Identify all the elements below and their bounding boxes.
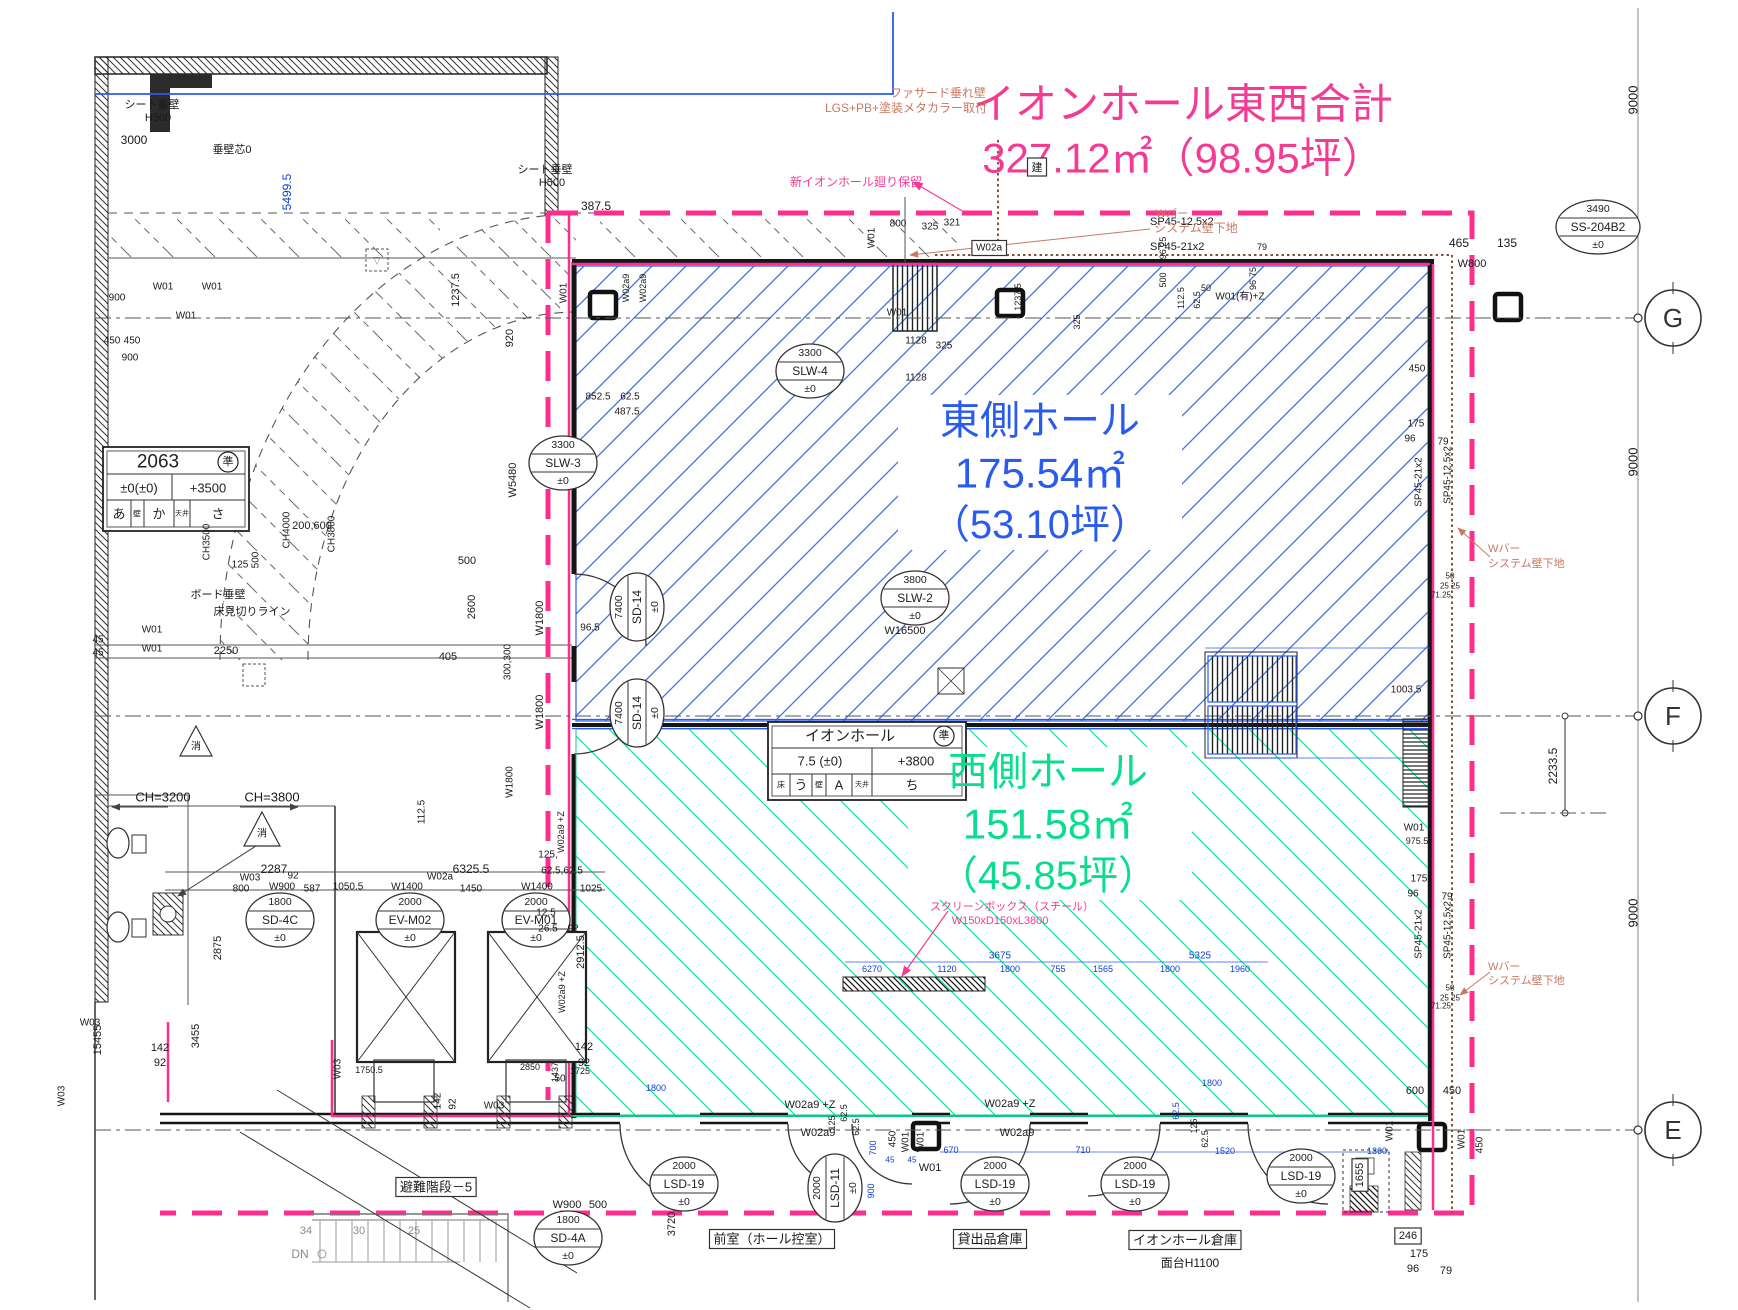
dim-label: 1800	[1000, 964, 1020, 974]
dim-label: 1360	[1367, 1146, 1387, 1156]
tag-row: SD-14	[630, 696, 644, 730]
east-hall-tsubo: （53.10坪）	[930, 503, 1150, 547]
dim-label: 710	[1075, 1145, 1090, 1155]
dim-label: 135	[1497, 236, 1517, 250]
dim-label: 1655	[1354, 1163, 1366, 1187]
dim-label: 92	[567, 924, 579, 935]
tag-row: ±0	[1295, 1188, 1307, 1200]
dim-label: 900	[109, 293, 126, 304]
dim-label: 142	[151, 1042, 169, 1054]
dim-label: 96	[1248, 280, 1258, 290]
dim-label: 45	[908, 1156, 917, 1165]
dim-label: 45	[92, 648, 104, 659]
dim-label: W03	[333, 1058, 344, 1079]
dim-label: 325	[922, 222, 939, 233]
dim-label: 5499.5	[280, 173, 294, 210]
tag-row: 3490	[1586, 203, 1610, 215]
dim-label: Wバー	[1488, 960, 1520, 973]
dim-label: 92	[448, 1098, 459, 1110]
tag-row: 7400	[613, 595, 625, 619]
dim-label: 587	[304, 884, 321, 895]
dim-label: CH4000	[282, 511, 293, 548]
dim-label: 1025	[580, 884, 603, 895]
dim-label: シート垂壁	[518, 162, 573, 176]
dim-label: 920	[504, 329, 516, 347]
dim-label: 96	[1404, 434, 1416, 445]
dim-label: W02a	[976, 243, 1003, 254]
dim-label: 450	[1443, 1085, 1461, 1097]
dim-label: 62.5	[1200, 1130, 1210, 1148]
dim-label: 建	[1032, 160, 1043, 174]
dim-label: 125	[1189, 1118, 1199, 1133]
dim-label: 112.5	[417, 799, 428, 824]
dim-label: W1800	[505, 766, 516, 798]
tag-row: 1800	[268, 896, 292, 908]
dim-label: 1565	[1093, 964, 1113, 974]
tag-cell: さ	[211, 507, 224, 522]
dim-label: W02a9 +Z	[784, 1099, 835, 1111]
dim-label: スクリーンボックス（スチール）	[930, 900, 1094, 913]
dim-label: LGS+PB+塗装メタカラー取付	[825, 100, 987, 115]
dim-label: 321	[944, 218, 961, 229]
dim-label: W02a9 +Z	[556, 811, 566, 853]
dim-label: W03	[240, 873, 261, 884]
dim-label: 6270	[862, 964, 882, 974]
dim-label: SP45-21x2	[1150, 241, 1204, 253]
dim-label: 900	[122, 353, 139, 364]
dim-label: 465	[1449, 236, 1469, 250]
dim-label: DN	[291, 1247, 308, 1261]
tag-row: LSD-19	[664, 1177, 705, 1191]
tag-row: SLW-4	[792, 364, 828, 378]
dim-label: 405	[439, 651, 457, 663]
dim-label: 1237.5	[450, 273, 462, 307]
door-tag-sd-14: 7400SD-14±0	[610, 573, 664, 641]
dim-label: 2850	[520, 1062, 540, 1072]
west-hall-tsubo: （45.85坪）	[938, 854, 1158, 898]
dim-label: 500	[458, 555, 476, 567]
tag-row: LSD-19	[975, 1177, 1016, 1191]
tag-row: ±0	[909, 610, 921, 622]
dim-label: W02a9	[1000, 1127, 1035, 1139]
dim-label: 1520	[1215, 1146, 1235, 1156]
dim-label: W1400	[391, 882, 423, 893]
tag-row: LSD-11	[828, 1168, 842, 1208]
dim-label: 79	[1440, 1265, 1452, 1277]
tag-row: SS-204B2	[1571, 220, 1626, 234]
tag-row: ±0	[989, 1196, 1001, 1208]
dim-label: 2250	[214, 645, 238, 657]
dim-label: W1800	[534, 601, 546, 636]
dim-label: W900	[269, 882, 296, 893]
dim-label: 3675	[989, 951, 1012, 962]
dim-label: 9000	[1626, 86, 1641, 115]
dim-label: 175	[1408, 419, 1425, 430]
dim-label: W01	[142, 644, 163, 655]
dim-label: SP45-21x2	[1414, 457, 1425, 507]
column	[1495, 294, 1521, 320]
dim-label: 15455	[92, 1025, 104, 1056]
dim-label: 9000	[1626, 899, 1641, 928]
dim-label: 1237.5	[1013, 283, 1023, 311]
dim-label: 1800	[1202, 1078, 1222, 1088]
dim-label: 700	[868, 1140, 878, 1155]
dim-label: ▽	[373, 256, 381, 267]
door-tag-ss-204b2: 3490SS-204B2±0	[1556, 200, 1640, 254]
dim-label: 175	[1411, 874, 1428, 885]
dim-label: 5325	[1189, 951, 1212, 962]
tag-cell: 壁	[815, 780, 823, 790]
tag-row: 2000	[811, 1176, 823, 1200]
dim-label: 62.5,62.5	[541, 866, 583, 877]
dim-label: 2912.5	[575, 935, 587, 969]
tag-cell: ち	[905, 778, 918, 793]
dim-label: W03	[57, 1085, 68, 1106]
dim-label: 900	[866, 1183, 876, 1198]
dim-label: 79	[1441, 892, 1453, 903]
dim-label: 1450	[460, 884, 483, 895]
dim-label: 450	[104, 336, 121, 347]
tag-cell: 床	[777, 780, 785, 790]
dim-label: 1050.5	[333, 882, 364, 893]
dim-label: 34	[300, 1225, 312, 1237]
dim-label: 1128	[905, 373, 927, 384]
dim-label: 2233.5	[1546, 747, 1560, 784]
dim-label: 1003.5	[1391, 685, 1422, 696]
dim-label: 面台H1100	[1161, 1255, 1220, 1270]
door-tag-lsd-19: 2000LSD-19±0	[961, 1157, 1029, 1211]
dim-label: 79	[1257, 242, 1267, 252]
dim-label: Wバー	[1156, 207, 1188, 220]
tag-row: ±0	[678, 1196, 690, 1208]
tag-row: ±0	[847, 1182, 859, 1194]
tag-level: ±0(±0)	[120, 481, 157, 496]
dim-label: H500	[539, 177, 565, 189]
tag-row: 2000	[1289, 1152, 1313, 1164]
dim-label: 800	[890, 219, 907, 230]
dim-label: 消	[191, 740, 201, 753]
door-tag-lsd-19: 2000LSD-19±0	[1101, 1157, 1169, 1211]
dim-label: 71.25	[1431, 1002, 1452, 1011]
elevator-shaft-ev-m01	[488, 932, 586, 1062]
dim-label: 消	[257, 827, 267, 840]
dim-label: W01	[1404, 823, 1425, 834]
dim-label: W01	[916, 1131, 927, 1152]
dim-label: 96	[1407, 889, 1419, 900]
plan-title-line1: イオンホール東西合計	[973, 81, 1393, 128]
door-tag-sd-14: 7400SD-14±0	[610, 679, 664, 747]
dim-label: 1750.5	[355, 1065, 383, 1075]
tag-row: ±0	[557, 475, 569, 487]
dim-label: 1128	[905, 336, 927, 347]
dim-label: 62.5	[620, 392, 640, 403]
tag-cell: 天井	[855, 780, 869, 789]
dim-label: W02a9 +Z	[984, 1098, 1035, 1110]
dim-label: 450	[1409, 364, 1426, 375]
tag-level: 7.5 (±0)	[798, 754, 843, 769]
room-label-escape-stair-5: 避難階段－5	[400, 1180, 472, 1195]
tag-row: LSD-19	[1115, 1177, 1156, 1191]
tag-number: 2063	[137, 452, 179, 473]
dim-label: 96.5	[580, 623, 600, 634]
dim-label: W01	[867, 227, 878, 248]
dim-label: W03	[80, 1018, 101, 1029]
tag-cell: か	[152, 507, 165, 522]
dim-label: 床見切りライン	[214, 604, 291, 618]
room-tag-2063: 2063 準 ±0(±0) +3500 あ 壁 か 天井 さ	[103, 447, 249, 531]
east-hall-area: 175.54㎡	[955, 450, 1125, 497]
dim-label: W01	[202, 282, 223, 293]
dim-label: 50	[1201, 283, 1211, 293]
door-tag-lsd-19: 2000LSD-19±0	[1267, 1149, 1335, 1203]
dim-label: 3455	[190, 1024, 202, 1048]
dim-label: CH3800	[327, 515, 338, 552]
room-tag-aeon-hall: イオンホール 準 7.5 (±0) +3800 床 う 壁 A 天井 ち	[768, 722, 966, 800]
dim-label: ボード垂壁	[191, 587, 246, 601]
tag-room-name: イオンホール	[805, 728, 895, 745]
dim-label: W01(有)+Z	[1215, 290, 1264, 303]
hall-areas	[576, 266, 1428, 1115]
dim-label: W03	[484, 1101, 505, 1112]
tag-row: 3300	[798, 347, 822, 359]
dim-label: W01	[142, 625, 163, 636]
dim-label: 500	[1158, 272, 1168, 287]
dim-label: 62.5	[851, 1118, 861, 1136]
dim-label: 25 25	[1440, 582, 1461, 591]
dim-label: 1120	[937, 964, 956, 974]
dim-label: 142	[575, 1041, 593, 1053]
east-hall-name: 東側ホール	[940, 399, 1140, 443]
door-tag-sd-4a: 1800SD-4A±0	[534, 1211, 602, 1265]
tag-row: 2000	[398, 896, 422, 908]
dim-label: W02a9	[638, 274, 648, 303]
dim-label: 79	[1437, 437, 1449, 448]
tag-cell: A	[835, 778, 844, 793]
door-tag-ev-m01: 2000EV-M01±0	[502, 893, 570, 947]
dim-label: 45	[92, 635, 104, 646]
tag-row: ±0	[1129, 1196, 1141, 1208]
tag-cell: う	[794, 778, 807, 793]
dim-label: 25	[408, 1225, 420, 1237]
dim-label: 50	[1446, 572, 1455, 581]
tag-row: 2000	[983, 1160, 1007, 1172]
west-hall-name: 西側ホール	[948, 750, 1148, 794]
tag-row: ±0	[649, 601, 661, 613]
door-tag-lsd-11: 2000LSD-11±0	[808, 1154, 862, 1222]
dim-label: 246	[1399, 1230, 1417, 1242]
dim-label: 新イオンホール廻り保留	[790, 174, 922, 189]
dim-label: 92	[287, 871, 299, 882]
tag-grade: 準	[939, 728, 950, 742]
screen-box	[843, 977, 985, 991]
dim-label: 71.25	[1431, 591, 1452, 600]
dim-label: 800	[233, 884, 250, 895]
dim-label: 62.5	[839, 1104, 849, 1122]
door-tag-slw-2: 3800SLW-2±0	[881, 571, 949, 625]
dim-label: 755	[1050, 964, 1065, 974]
west-hall-area: 151.58㎡	[963, 801, 1133, 848]
floor-plan-canvas: G F E	[0, 0, 1738, 1310]
dim-label: 9000	[1626, 448, 1641, 477]
tag-row: 7400	[613, 701, 625, 725]
dim-label: 125,	[538, 850, 557, 861]
dim-label: H500	[145, 112, 171, 124]
dim-label: 3720	[666, 1212, 678, 1236]
room-label-lending-storage: 貸出品倉庫	[957, 1232, 1022, 1247]
tag-cell: あ	[112, 507, 125, 522]
tag-row: 2000	[672, 1160, 696, 1172]
dim-label: 852.5	[585, 392, 610, 403]
dim-label: 670	[943, 1145, 958, 1155]
dim-label: 2600	[466, 595, 478, 619]
tag-row: ±0	[1592, 239, 1604, 251]
dim-label: W02a	[427, 872, 454, 883]
dim-label: 600	[1406, 1085, 1424, 1097]
dim-label: 387.5	[581, 199, 611, 213]
grid-label-G: G	[1663, 303, 1683, 333]
dim-label: 1800	[646, 1083, 666, 1093]
dim-label: 125	[232, 560, 249, 571]
dim-label: W800	[1458, 258, 1487, 270]
dim-label: システム壁下地	[1154, 220, 1238, 235]
dim-label: システム壁下地	[1488, 556, 1565, 570]
dim-label: 2875	[212, 936, 224, 960]
dim-label: W1400	[521, 882, 553, 893]
dim-label: CH=3800	[244, 790, 299, 805]
tag-row: 2000	[524, 896, 548, 908]
dim-label: ファサード垂れ壁	[890, 85, 986, 100]
dim-label: 2287	[261, 862, 288, 876]
dim-label: 125	[827, 1115, 837, 1130]
tag-row: SD-14	[630, 590, 644, 624]
dim-label: 3000	[121, 133, 148, 147]
dim-label: 50	[554, 1074, 566, 1085]
tag-row: ±0	[274, 932, 286, 944]
tag-row: LSD-19	[1281, 1169, 1322, 1183]
tag-row: ±0	[404, 932, 416, 944]
dim-label: W16500	[885, 625, 926, 637]
dim-label: 62.5	[1171, 1102, 1181, 1120]
dim-label: 1800	[1160, 964, 1180, 974]
dim-label: 487.5	[614, 407, 639, 418]
dim-label: 12.5	[536, 908, 556, 919]
dim-label: 62.5	[1192, 291, 1202, 309]
dim-label: 450	[124, 336, 141, 347]
dim-label: Wバー	[1488, 542, 1520, 555]
dim-label: W02a9 +Z	[557, 971, 567, 1013]
tag-ceiling-level: +3500	[190, 481, 227, 496]
dim-label: 500	[251, 551, 262, 568]
dim-label: 112.5	[1176, 287, 1186, 309]
door-tag-sd-4c: 1800SD-4C±0	[246, 893, 314, 947]
grid-label-F: F	[1665, 701, 1681, 731]
dim-label: シート垂壁	[125, 97, 180, 111]
tag-grade: 準	[223, 454, 234, 468]
dim-label: 45	[886, 1156, 895, 1165]
dim-label: 92	[578, 1057, 590, 1069]
dim-label: 96	[1407, 1263, 1419, 1275]
dim-label: W01	[1457, 1128, 1468, 1149]
dim-label: 142	[433, 1092, 444, 1109]
tag-row: 3800	[903, 574, 927, 586]
dim-label: 26.5	[538, 924, 558, 935]
elevator-shaft-ev-m02	[357, 932, 455, 1062]
door-tag-lsd-19: 2000LSD-19±0	[650, 1157, 718, 1211]
dim-label: 300,300	[503, 643, 514, 680]
dim-label: 1960	[1230, 964, 1250, 974]
dim-label: 325	[936, 341, 953, 352]
dim-label: 75	[1248, 267, 1258, 277]
tag-cell: 壁	[133, 509, 141, 519]
dim-label: W01	[919, 1162, 942, 1174]
dim-label: 30	[353, 1225, 365, 1237]
dim-label: CH=3200	[135, 790, 190, 805]
dim-label: W01	[887, 308, 908, 319]
tag-row: 1800	[556, 1214, 580, 1226]
dim-label: 50	[1446, 984, 1455, 993]
dim-label: 500	[589, 1199, 607, 1211]
tag-cell: 天井	[175, 509, 189, 518]
grid-label-E: E	[1664, 1115, 1681, 1145]
door-tag-ev-m02: 2000EV-M02±0	[376, 893, 444, 947]
door-tag-slw-3: 3300SLW-3±0	[529, 436, 597, 490]
door-tag-slw-4: 3300SLW-4±0	[776, 344, 844, 398]
tag-row: ±0	[649, 707, 661, 719]
room-label-anteroom: 前室（ホール控室）	[713, 1232, 830, 1247]
dim-label: CH3500	[202, 523, 213, 560]
dim-label: W01	[1385, 1120, 1396, 1141]
dim-label: SP45-12.5x2	[1443, 446, 1454, 504]
dim-label: 6325.5	[453, 862, 490, 876]
dim-label: W900	[553, 1199, 582, 1211]
dim-label: W01	[153, 282, 174, 293]
dim-label: 325	[1072, 314, 1082, 329]
dim-label: 92	[154, 1057, 166, 1069]
dim-label: システム壁下地	[1488, 973, 1565, 987]
column	[590, 292, 616, 318]
room-label-aeon-hall-storage: イオンホール倉庫	[1133, 1233, 1237, 1248]
dim-label: 450	[888, 1130, 899, 1147]
dim-label: 175	[1410, 1248, 1428, 1260]
tag-row: SLW-3	[545, 456, 581, 470]
dim-label: 975.5	[1406, 836, 1429, 846]
dim-label: W01	[901, 1131, 912, 1152]
dim-label: W02a9	[621, 274, 631, 303]
dim-label: W150xD150xL3800	[952, 915, 1049, 927]
tag-row: ±0	[804, 383, 816, 395]
dim-label: W5480	[507, 463, 519, 498]
tag-ceiling-level: +3800	[898, 754, 935, 769]
dim-label: W01	[559, 282, 570, 303]
tag-row: SLW-2	[897, 591, 933, 605]
dim-label: 垂壁芯0	[212, 142, 251, 156]
tag-row: SD-4C	[262, 913, 298, 927]
dim-label: W1800	[534, 695, 546, 730]
dim-label: W01	[176, 311, 197, 322]
tag-row: ±0	[562, 1250, 574, 1262]
tag-row: 3300	[551, 439, 575, 451]
dim-label: SP45-21x2	[1414, 909, 1425, 959]
dim-label: 450	[1475, 1136, 1486, 1153]
dim-label: SP45-12.5x2	[1443, 901, 1454, 959]
tag-row: 2000	[1123, 1160, 1147, 1172]
tag-row: EV-M02	[389, 913, 432, 927]
tag-row: SD-4A	[550, 1231, 585, 1245]
